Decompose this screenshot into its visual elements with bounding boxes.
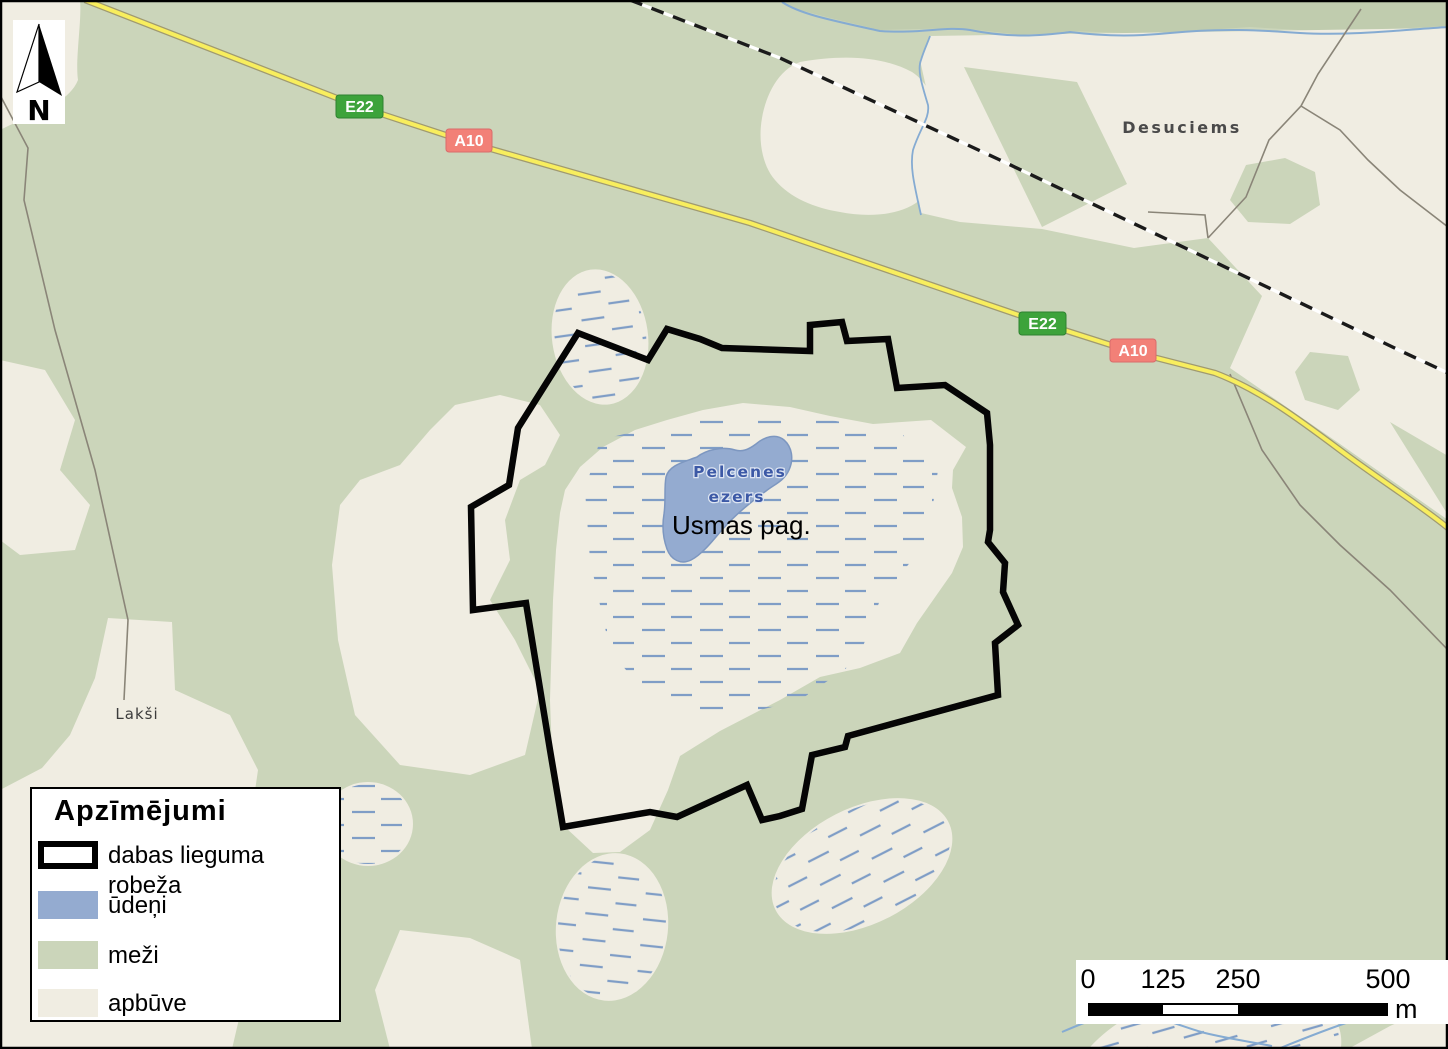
- north-arrow: N: [13, 20, 65, 124]
- scale-bar-rule: [1088, 1003, 1388, 1016]
- legend-item-water: ūdeņi: [32, 891, 339, 923]
- north-arrow-icon: [13, 20, 65, 98]
- legend-item-boundary: dabas lieguma robeža: [32, 841, 339, 873]
- label-municipality: Usmas pag.: [672, 510, 811, 540]
- legend-label-forest: meži: [108, 941, 159, 971]
- legend-item-builtup: apbūve: [32, 989, 339, 1021]
- legend: Apzīmējumi dabas lieguma robeža ūdeņi me…: [30, 787, 341, 1022]
- legend-title: Apzīmējumi: [54, 795, 227, 828]
- label-desuciems: Desuciems: [1122, 118, 1242, 137]
- legend-label-boundary: dabas lieguma robeža: [108, 841, 339, 871]
- label-laksi: Lakši: [115, 705, 158, 723]
- legend-swatch-builtup: [38, 989, 98, 1017]
- legend-swatch-water: [38, 891, 98, 919]
- scale-tick-250: 250: [1215, 964, 1260, 995]
- shield-e22-east-text: E22: [1028, 316, 1057, 333]
- label-lake-line1: Pelcenes: [693, 463, 787, 481]
- scale-tick-500: 500: [1365, 964, 1410, 995]
- legend-label-builtup: apbūve: [108, 989, 187, 1019]
- shield-a10-east: A10: [1110, 339, 1156, 362]
- scale-bar-white-segment: [1163, 1005, 1238, 1014]
- shield-a10-east-text: A10: [1118, 343, 1147, 360]
- scale-bar: 0 125 250 500 m: [1076, 960, 1448, 1024]
- north-label: N: [13, 94, 65, 127]
- shield-a10-west: A10: [446, 129, 492, 152]
- legend-swatch-forest: [38, 941, 98, 969]
- scale-tick-125: 125: [1140, 964, 1185, 995]
- label-lake-line2: ezers: [709, 488, 766, 506]
- scale-unit: m: [1395, 994, 1418, 1025]
- map-page: Desuciems Lakši Pelcenes ezers Usmas pag…: [0, 0, 1448, 1049]
- legend-item-forest: meži: [32, 941, 339, 973]
- shield-e22-west-text: E22: [345, 99, 374, 116]
- legend-label-water: ūdeņi: [108, 891, 167, 921]
- shield-e22-west: E22: [336, 95, 383, 118]
- scale-tick-0: 0: [1080, 964, 1095, 995]
- shield-e22-east: E22: [1019, 312, 1066, 335]
- shield-a10-west-text: A10: [454, 133, 483, 150]
- legend-swatch-boundary: [38, 841, 98, 869]
